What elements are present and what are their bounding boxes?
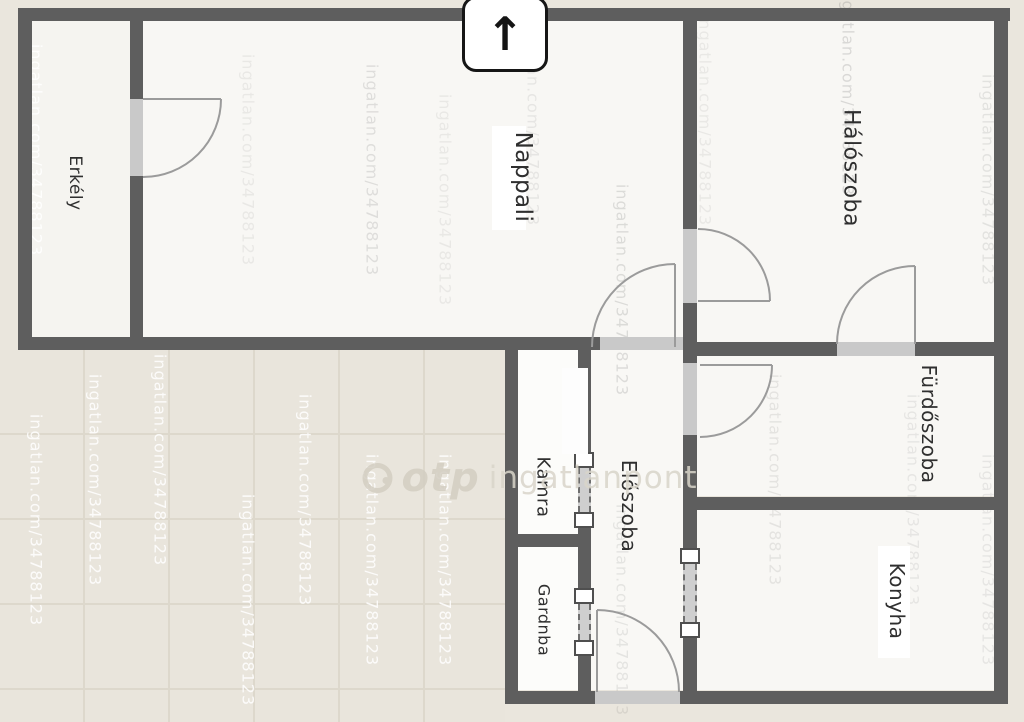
room-label-konyha: Konyha xyxy=(885,563,909,640)
door-opening-furdoszoba xyxy=(683,363,697,435)
fixture xyxy=(562,368,588,454)
wall-left xyxy=(18,8,32,350)
wall-bottom xyxy=(680,691,1008,704)
wall-nappali-haloszoba xyxy=(683,303,697,350)
wall-nappali-haloszoba xyxy=(683,8,697,229)
room-label-haloszoba: Hálószoba xyxy=(839,109,864,227)
door-opening-nappali-haloszoba xyxy=(683,229,697,303)
window-jamb xyxy=(574,640,594,656)
window-jamb xyxy=(680,548,700,564)
wall-balcony-divider xyxy=(130,8,143,100)
north-arrow-icon: ↑ xyxy=(486,11,525,57)
room-konyha xyxy=(697,510,994,690)
wall-haloszoba-bottom xyxy=(697,342,837,356)
room-label-eloszoba: Előszoba xyxy=(617,460,641,553)
room-label-nappali: Nappali xyxy=(510,132,536,223)
room-label-furdoszoba: Fürdőszoba xyxy=(917,365,941,484)
room-label-gardnba: Gardnba xyxy=(535,584,554,656)
window-jamb xyxy=(574,588,594,604)
window-jamb xyxy=(574,512,594,528)
north-arrow: ↑ xyxy=(462,0,548,72)
door-opening-entrance xyxy=(595,691,680,704)
window-symbol-konyha xyxy=(683,564,697,622)
room-nappali xyxy=(143,21,683,337)
door-opening-balcony xyxy=(130,99,143,176)
room-furdoszoba xyxy=(697,356,994,496)
wall-eloszoba-right xyxy=(683,348,697,363)
wall-lower-left xyxy=(505,348,518,704)
room-label-erkely: Erkély xyxy=(65,155,85,210)
room-label-kamra: Kamra xyxy=(533,457,554,518)
window-jamb xyxy=(680,622,700,638)
window-jamb xyxy=(574,452,594,468)
wall-furdoszoba-konyha-divider xyxy=(697,497,1008,510)
window-symbol-kamra xyxy=(578,468,591,512)
wall-balcony-divider xyxy=(130,176,143,350)
door-opening-nappali-eloszoba xyxy=(600,337,683,350)
door-opening-haloszoba-furdoszoba xyxy=(837,342,915,356)
window-symbol-gardnba xyxy=(578,604,591,640)
tile-paving xyxy=(0,350,505,722)
wall-right xyxy=(994,8,1008,704)
